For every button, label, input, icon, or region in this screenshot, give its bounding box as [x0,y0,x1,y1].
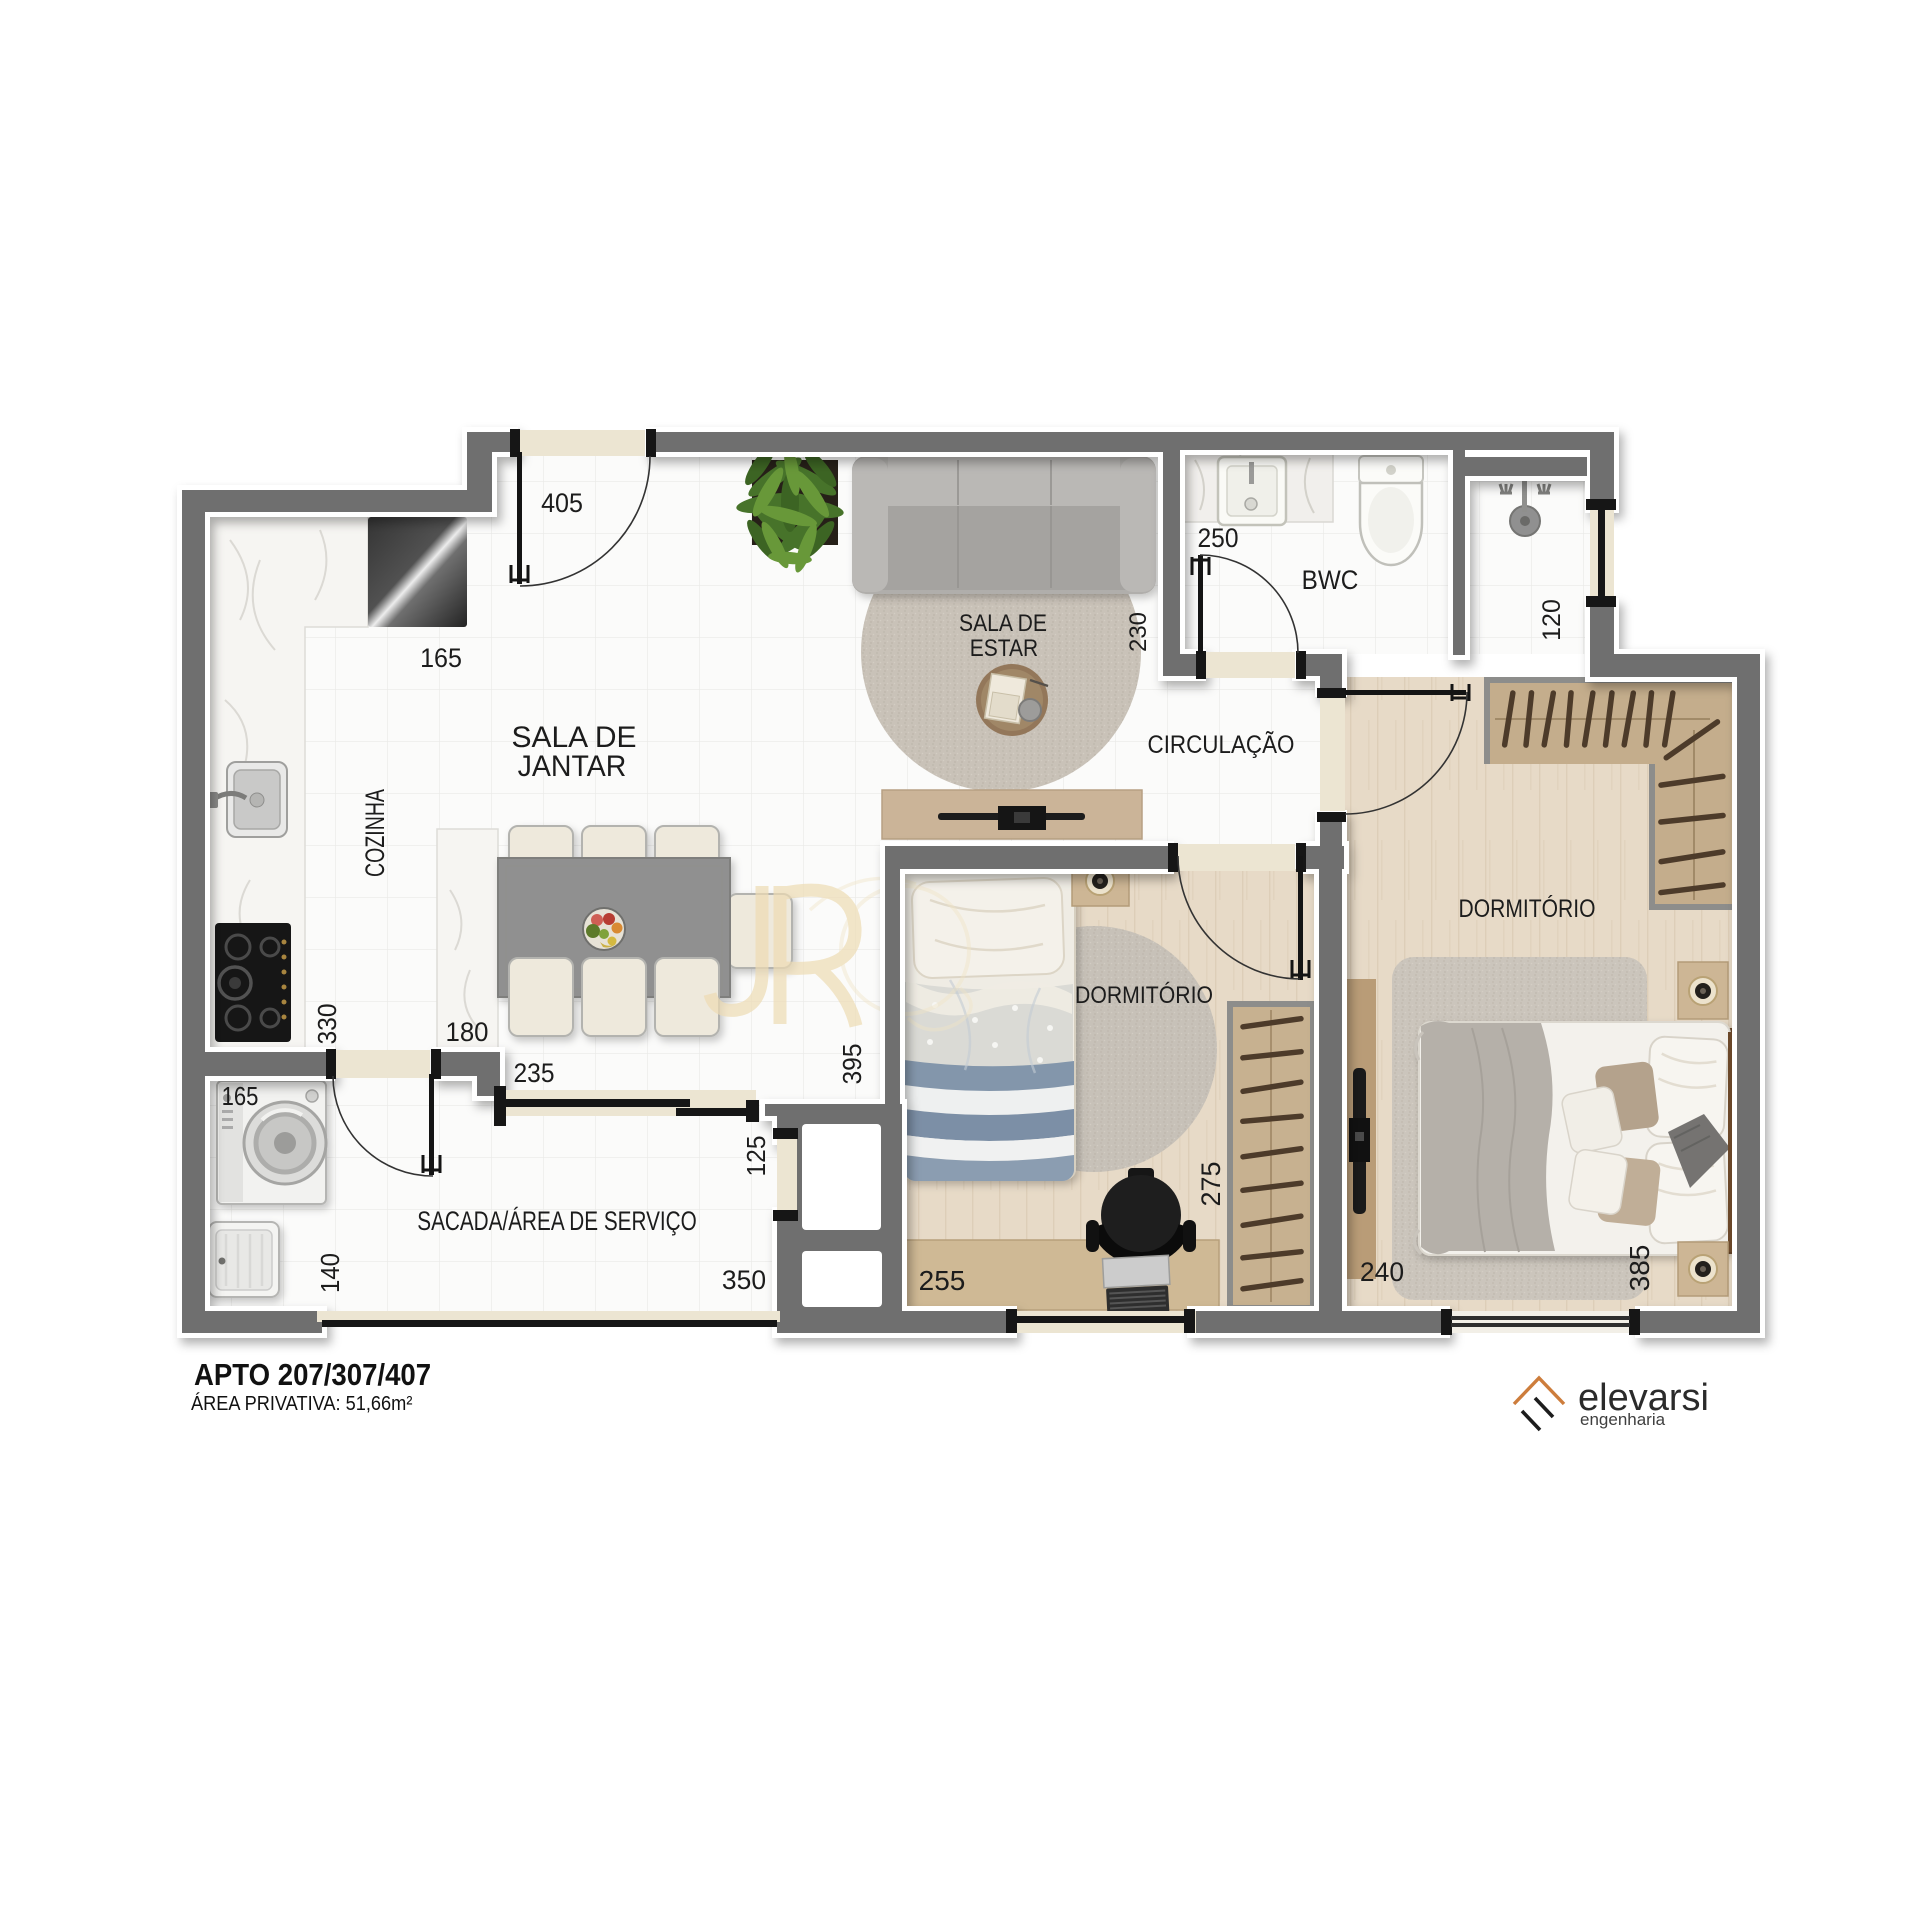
svg-text:275: 275 [1196,1161,1226,1206]
svg-text:385: 385 [1624,1245,1655,1292]
svg-text:255: 255 [919,1265,966,1296]
svg-text:SALA DE: SALA DE [959,610,1047,637]
svg-text:235: 235 [514,1059,555,1088]
svg-text:CIRCULAÇÃO: CIRCULAÇÃO [1148,731,1295,759]
svg-text:DORMITÓRIO: DORMITÓRIO [1075,981,1213,1009]
svg-text:405: 405 [541,487,583,518]
svg-text:330: 330 [313,1004,342,1045]
svg-text:240: 240 [1360,1257,1404,1287]
svg-text:COZINHA: COZINHA [360,789,390,877]
svg-text:engenharia: engenharia [1580,1410,1666,1429]
svg-text:APTO 207/307/407: APTO 207/307/407 [194,1358,431,1393]
svg-text:165: 165 [420,642,462,673]
svg-text:JANTAR: JANTAR [518,750,627,783]
svg-text:120: 120 [1538,599,1566,641]
svg-text:SACADA/ÁREA DE SERVIÇO: SACADA/ÁREA DE SERVIÇO [417,1206,697,1236]
svg-text:180: 180 [446,1016,489,1047]
svg-text:140: 140 [316,1253,345,1293]
svg-text:125: 125 [742,1136,771,1177]
svg-text:230: 230 [1125,612,1152,652]
svg-text:DORMITÓRIO: DORMITÓRIO [1459,894,1596,922]
svg-text:250: 250 [1198,524,1239,553]
svg-text:BWC: BWC [1302,566,1359,595]
svg-text:350: 350 [722,1265,766,1295]
svg-text:ÁREA PRIVATIVA: 51,66m²: ÁREA PRIVATIVA: 51,66m² [191,1393,412,1415]
svg-text:ESTAR: ESTAR [970,635,1038,662]
svg-text:SALA DE: SALA DE [511,721,636,754]
svg-text:395: 395 [838,1044,867,1085]
svg-text:165: 165 [222,1082,259,1111]
